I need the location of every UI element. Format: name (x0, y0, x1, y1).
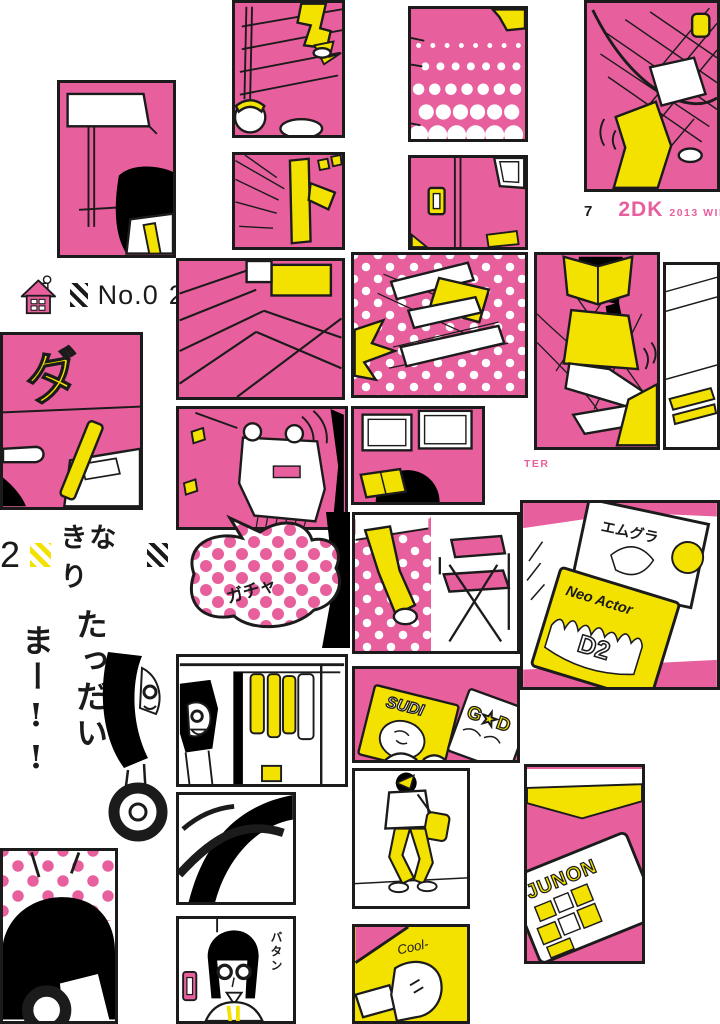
yellow-legs-icon (297, 4, 330, 49)
dotted-cat-pillow-icon (191, 518, 339, 627)
camera-girl-art (100, 652, 176, 844)
panel-junon: JUNON (524, 764, 645, 964)
katakana-fragment-icon (309, 183, 335, 209)
panel-stairs-bottom (176, 258, 345, 400)
panel-window-read (351, 406, 485, 505)
sfx-da-text: ダ (20, 342, 86, 416)
pocket-icon (273, 466, 300, 477)
girl-closeup-art (3, 851, 115, 1021)
hair-corner-icon (3, 478, 26, 507)
shirt-icon (239, 438, 325, 522)
staircase-art (179, 261, 342, 397)
closet-art (179, 657, 345, 784)
sfx-batan-text: バタン (268, 931, 285, 973)
splash-icon (355, 320, 395, 379)
panel-hair-closeup (176, 792, 296, 905)
yellow-corner-icon (493, 9, 525, 30)
hanging-shirt-art (179, 409, 345, 527)
sleeping-cool-art: Cool- (355, 927, 467, 1021)
episode-header: No.02 (18, 266, 176, 324)
yellow-leg-icon (365, 526, 415, 614)
reading-magazines-art: SUDI G★D (355, 669, 517, 760)
panel-halftone (408, 6, 528, 142)
episode-title: きなり (60, 516, 137, 594)
cool-poster-text: Cool- (396, 936, 430, 957)
window-reader-art (354, 409, 482, 502)
eye-icon (218, 965, 231, 978)
dakuten-icon (192, 428, 205, 443)
hair-strand-icon (183, 806, 234, 829)
episode-number-digit: 2 (0, 534, 21, 576)
hand-icon (244, 423, 261, 440)
panel-walker (352, 768, 470, 909)
panel-hammock (584, 0, 720, 192)
hair-sweep-art (179, 795, 293, 902)
stairs-descent-art (235, 3, 342, 135)
panel-room-ac (57, 80, 176, 258)
panel-sud-mags: SUDI G★D (352, 666, 520, 763)
door-art (411, 158, 525, 247)
panel-camera-girl (100, 652, 176, 844)
episode-number-prefix: No.0 (98, 280, 159, 311)
book-icon (401, 326, 505, 366)
panel-cool: Cool- (352, 924, 470, 1024)
manga-collage-page: 7 2DK 2013 WINT (0, 0, 720, 1024)
cat-blob-icon (280, 119, 322, 135)
panel-closet (176, 654, 348, 787)
chair-back-icon (451, 536, 505, 557)
eye-icon (144, 686, 156, 698)
house-icon (18, 267, 60, 323)
chair-art (355, 515, 517, 651)
ceiling-panel-icon (68, 94, 150, 126)
bob-hair-icon (208, 930, 259, 998)
magazine-issue: 2013 WINT (669, 207, 720, 219)
panel-sfx-do (232, 152, 345, 250)
window-icon (247, 261, 272, 282)
white-top-icon (385, 791, 431, 829)
panel-big-da: ダ (0, 332, 143, 510)
mouth-icon (144, 706, 156, 709)
black-stripe-badge (147, 543, 168, 567)
walking-person-art (355, 771, 467, 906)
yellow-wall-icon (272, 265, 331, 296)
sock-icon (394, 609, 417, 624)
big-eye-icon (28, 991, 66, 1021)
page-number: 7 (584, 203, 592, 220)
tadaima-column-2: まー!! (13, 624, 59, 794)
magazine-pile-art: エムグラ Neo Actor D2 (523, 503, 717, 687)
desk-art (666, 265, 717, 447)
magazine-brand: 2DK (618, 198, 663, 222)
hand-icon (3, 447, 43, 462)
white-shirt-icon (206, 1002, 263, 1021)
panel-side-desk (663, 262, 720, 450)
halftone-dots-art (411, 9, 525, 139)
black-stripe-badge (70, 283, 87, 307)
yellow-fist-icon (692, 14, 709, 37)
dakuten-icon (318, 159, 329, 170)
panel-magazines: エムグラ Neo Actor D2 (520, 500, 720, 690)
yellow-dress-icon (564, 310, 638, 369)
da-sfx-art: ダ (3, 335, 140, 507)
panel-hammock-sit (534, 252, 660, 450)
panel-girl-batan: バタン (176, 916, 296, 1024)
clothes-on-floor-icon (262, 766, 281, 781)
junon-magazine-art: JUNON (527, 767, 642, 961)
hanging-clothes-icon (251, 674, 314, 739)
panel-legs-chair (352, 512, 520, 654)
pillow-icon (356, 985, 397, 1017)
white-shorts-icon (650, 58, 705, 106)
panel-polka-cat: ガチャ (176, 512, 350, 648)
flying-books-art (354, 255, 525, 395)
panel-door (408, 155, 528, 250)
panel-books-fly (351, 252, 528, 398)
panel-polka-head (0, 848, 118, 1024)
yellow-pants-icon (389, 829, 414, 884)
yellow-stripe-badge (30, 543, 51, 567)
page-footer: 7 2DK 2013 WINT (584, 198, 720, 222)
footer-fragment: TER (524, 458, 550, 470)
episode-number-digit-clipped: 2 (169, 280, 176, 311)
reading-in-hammock-art (537, 255, 657, 447)
dakuten-icon (184, 479, 197, 494)
eye-icon (192, 711, 203, 722)
polka-pillow-art: ガチャ (176, 512, 350, 648)
blanket-icon (527, 784, 642, 818)
eye-icon (237, 965, 250, 978)
hand-icon (286, 425, 303, 442)
episode-title-strip: 2 きなり (0, 528, 168, 582)
katakana-fragment-icon (290, 159, 311, 243)
closet-gap-icon (233, 672, 243, 784)
hammock-art (587, 3, 717, 189)
impact-lines-art (235, 155, 342, 247)
dakuten-icon (331, 155, 341, 166)
panel-stairs-top (232, 0, 345, 138)
room-interior-art (60, 83, 173, 255)
chair-seat-icon (444, 571, 509, 592)
hair-edge-icon (331, 409, 344, 527)
